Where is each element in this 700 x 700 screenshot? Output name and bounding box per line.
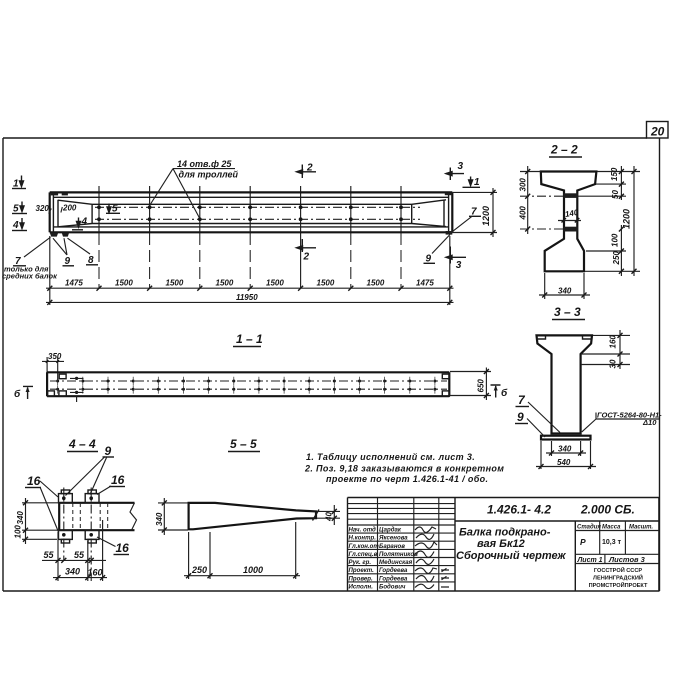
svg-text:250: 250 — [191, 565, 207, 575]
svg-text:Гордеева: Гордеева — [379, 567, 408, 574]
svg-text:20: 20 — [650, 125, 665, 139]
svg-text:55: 55 — [74, 550, 85, 560]
svg-text:Стадия: Стадия — [577, 525, 601, 531]
svg-text:14 отв.ф 25: 14 отв.ф 25 — [177, 159, 232, 169]
svg-text:Сборочный чертеж: Сборочный чертеж — [456, 550, 566, 562]
svg-text:55: 55 — [44, 550, 55, 560]
svg-text:100: 100 — [14, 525, 23, 539]
svg-text:5 – 5: 5 – 5 — [230, 437, 257, 451]
svg-text:б: б — [14, 388, 21, 400]
svg-text:Баранов: Баранов — [379, 543, 405, 550]
svg-text:Нач. отд: Нач. отд — [349, 527, 377, 534]
svg-text:Гордеева: Гордеева — [379, 575, 408, 582]
svg-text:2: 2 — [303, 252, 310, 263]
svg-text:4 – 4: 4 – 4 — [68, 437, 96, 451]
svg-text:Бодович: Бодович — [379, 584, 406, 591]
svg-text:1000: 1000 — [243, 565, 263, 575]
svg-text:Гл.кон.от: Гл.кон.от — [349, 543, 380, 550]
svg-text:100: 100 — [611, 233, 620, 247]
svg-text:ЛЕНИНГРАДСКИЙ: ЛЕНИНГРАДСКИЙ — [593, 574, 643, 582]
svg-text:1500: 1500 — [216, 279, 234, 288]
svg-text:Провер.: Провер. — [349, 575, 373, 582]
svg-text:160: 160 — [88, 568, 103, 578]
svg-text:1 – 1: 1 – 1 — [236, 332, 263, 346]
svg-text:1.426.1- 4.2: 1.426.1- 4.2 — [487, 503, 551, 517]
svg-text:340: 340 — [155, 512, 164, 526]
svg-text:1. Таблицу исполнений см. ли: 1. Таблицу исполнений см. лист 3. — [306, 452, 475, 462]
svg-text:Масшт.: Масшт. — [629, 525, 653, 531]
svg-text:Гл.спец.в: Гл.спец.в — [349, 551, 378, 558]
svg-text:1500: 1500 — [115, 279, 133, 288]
svg-text:300: 300 — [518, 178, 527, 192]
svg-text:1: 1 — [474, 177, 480, 188]
svg-text:4: 4 — [12, 220, 19, 231]
svg-text:1500: 1500 — [166, 279, 184, 288]
svg-text:Листов 3: Листов 3 — [608, 555, 646, 564]
svg-text:150: 150 — [610, 167, 619, 181]
svg-text:Проект.: Проект. — [349, 567, 375, 574]
svg-text:340: 340 — [558, 445, 572, 454]
svg-text:1500: 1500 — [266, 279, 284, 288]
svg-text:160: 160 — [609, 335, 618, 349]
svg-text:30: 30 — [609, 359, 618, 368]
svg-text:вая Бк12: вая Бк12 — [477, 538, 525, 550]
svg-text:1200: 1200 — [622, 209, 632, 229]
svg-text:340: 340 — [16, 511, 25, 525]
svg-text:11950: 11950 — [236, 293, 258, 302]
svg-text:340: 340 — [558, 287, 572, 296]
svg-text:средних балок: средних балок — [2, 272, 58, 281]
svg-text:250: 250 — [612, 251, 621, 266]
svg-text:для троллей: для троллей — [179, 170, 239, 180]
svg-text:9: 9 — [517, 410, 524, 424]
svg-text:2. Поз. 9,18 заказываются в ко: 2. Поз. 9,18 заказываются в конкретном — [304, 464, 504, 474]
svg-text:проекте по черт 1.426.1-41 /: проекте по черт 1.426.1-41 / обо. — [326, 474, 488, 484]
svg-text:16: 16 — [111, 473, 125, 487]
svg-text:б: б — [501, 387, 508, 399]
svg-text:540: 540 — [557, 458, 571, 467]
svg-text:200: 200 — [62, 204, 77, 213]
svg-text:Δ10: Δ10 — [642, 418, 657, 427]
svg-text:16: 16 — [27, 474, 41, 488]
svg-text:Яксенова: Яксенова — [378, 535, 408, 542]
svg-text:350: 350 — [48, 352, 62, 361]
svg-text:1500: 1500 — [367, 279, 385, 288]
svg-text:10,3 т: 10,3 т — [602, 539, 622, 546]
svg-text:Мединская: Мединская — [379, 559, 413, 566]
svg-text:Полятников: Полятников — [379, 551, 418, 558]
svg-text:Лист 1: Лист 1 — [577, 557, 603, 564]
svg-text:Исполн.: Исполн. — [349, 584, 374, 591]
svg-text:400: 400 — [518, 206, 527, 221]
svg-text:Р: Р — [580, 537, 586, 547]
svg-text:4: 4 — [81, 217, 88, 228]
svg-text:1475: 1475 — [416, 279, 434, 288]
svg-text:3 – 3: 3 – 3 — [554, 305, 581, 319]
svg-text:Рук. гр.: Рук. гр. — [349, 559, 372, 566]
svg-text:650: 650 — [477, 379, 486, 393]
svg-text:3: 3 — [456, 260, 462, 271]
svg-text:ПРОМСТРОЙПРОЕКТ: ПРОМСТРОЙПРОЕКТ — [589, 581, 648, 589]
svg-text:ГОССТРОЙ СССР: ГОССТРОЙ СССР — [594, 566, 643, 574]
svg-text:1500: 1500 — [317, 279, 335, 288]
svg-text:9: 9 — [105, 444, 112, 458]
svg-text:320: 320 — [36, 204, 50, 213]
svg-text:40: 40 — [325, 512, 334, 522]
svg-text:2 – 2: 2 – 2 — [550, 143, 578, 157]
svg-text:1475: 1475 — [65, 279, 83, 288]
svg-text:2: 2 — [306, 163, 313, 174]
svg-text:340: 340 — [65, 567, 80, 577]
svg-text:2.000 СБ.: 2.000 СБ. — [580, 503, 635, 517]
svg-text:Н.контр.: Н.контр. — [349, 535, 377, 542]
svg-text:50: 50 — [611, 190, 620, 199]
svg-text:Балка подкрано-: Балка подкрано- — [459, 527, 551, 539]
svg-text:16: 16 — [116, 541, 130, 555]
svg-text:3: 3 — [458, 161, 464, 172]
svg-text:Масса: Масса — [602, 525, 621, 531]
svg-text:1200: 1200 — [481, 206, 491, 226]
svg-text:Цардак: Цардак — [379, 527, 402, 534]
